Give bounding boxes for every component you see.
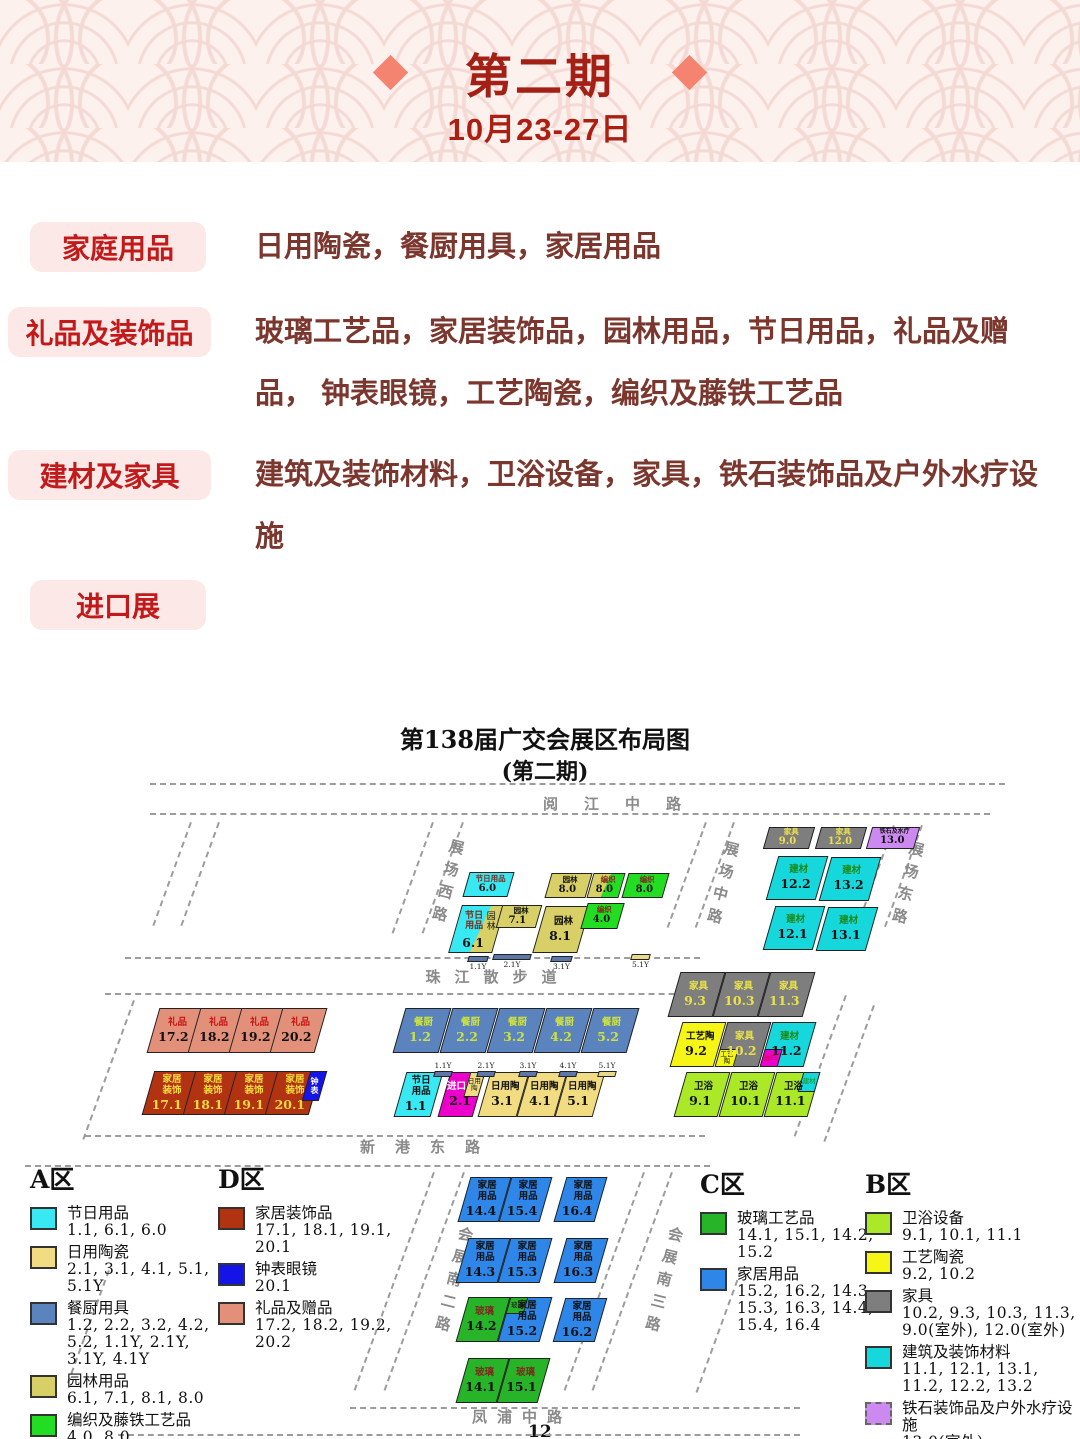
hall-number: 15.4 bbox=[507, 1204, 537, 1218]
hall-label: 家具 bbox=[734, 982, 753, 993]
legend-swatch bbox=[218, 1207, 245, 1230]
hall-number: 5.1 bbox=[567, 1094, 589, 1108]
legend-text: 工艺陶瓷9.2, 10.2 bbox=[902, 1249, 976, 1283]
hall-label: 日用陶 bbox=[568, 1082, 597, 1093]
hall-label: 家居装饰 bbox=[200, 1075, 226, 1097]
legend-label: 卫浴设备 bbox=[902, 1210, 1023, 1227]
hall-number: 10.1 bbox=[730, 1094, 760, 1108]
hall-block: 建材13.1 bbox=[816, 907, 879, 951]
hall-label: 卫浴 bbox=[740, 1082, 759, 1093]
hall-label: 建材 bbox=[790, 865, 809, 876]
legend-text: 家具10.2, 9.3, 10.3, 11.3, 9.0(室外), 12.0(室… bbox=[902, 1288, 1080, 1339]
hall-label: 家具 bbox=[783, 828, 798, 836]
category-pill: 进口展 bbox=[30, 580, 206, 630]
hall-label: 玻璃 bbox=[516, 1368, 535, 1379]
road-label: 凤浦中路 bbox=[472, 1406, 572, 1427]
hall-label: 家居用品 bbox=[569, 1302, 595, 1324]
hall-label: 餐厨 bbox=[509, 1018, 528, 1029]
legend-text: 铁石装饰品及户外水疗设施13.0(室外) bbox=[902, 1400, 1080, 1439]
hall-block: 编织8.0 bbox=[586, 873, 625, 898]
hall-number: 11.2 bbox=[771, 1044, 801, 1058]
legend-label: 玻璃工艺品 bbox=[737, 1210, 885, 1227]
legend-label: 编织及藤铁工艺品 bbox=[67, 1412, 191, 1429]
hall-number: 12.1 bbox=[777, 927, 807, 941]
category-pill: 礼品及装饰品 bbox=[8, 307, 211, 357]
legend-label: 铁石装饰品及户外水疗设施 bbox=[902, 1400, 1080, 1434]
legend-label: 家居用品 bbox=[737, 1266, 885, 1283]
legend-text: 礼品及赠品17.2, 18.2, 19.2, 20.2 bbox=[255, 1300, 433, 1351]
hall-number: 10.3 bbox=[725, 994, 755, 1008]
legend-item: 园林用品6.1, 7.1, 8.1, 8.0 bbox=[30, 1373, 235, 1407]
road-line bbox=[125, 957, 700, 959]
hall-label: 编织 bbox=[600, 876, 615, 884]
legend-item: 家居装饰品17.1, 18.1, 19.1, 20.1 bbox=[218, 1205, 433, 1256]
legend-halls: 17.1, 18.1, 19.1, 20.1 bbox=[255, 1222, 433, 1256]
hall-label: 礼品 bbox=[168, 1018, 187, 1029]
hall-label: 家居用品 bbox=[570, 1242, 596, 1264]
hall-number: 2.2 bbox=[456, 1030, 478, 1044]
legend-item: 玻璃工艺品14.1, 15.1, 14.2, 15.2 bbox=[700, 1210, 885, 1261]
category-list: 家庭用品日用陶瓷，餐厨用具，家居用品礼品及装饰品玻璃工艺品，家居装饰品，园林用品… bbox=[0, 162, 1080, 710]
hall-label: 玻璃 bbox=[476, 1307, 495, 1318]
hall-block: 节日用品园林6.1 bbox=[448, 905, 506, 953]
legend-swatch bbox=[30, 1414, 57, 1437]
legend-text: 编织及藤铁工艺品4.0, 8.0 bbox=[67, 1412, 191, 1439]
annex-bar: 4.1Y bbox=[552, 1062, 584, 1077]
hall-number: 6.0 bbox=[479, 884, 496, 895]
legend-label: 家居装饰品 bbox=[255, 1205, 433, 1222]
legend-item: 钟表眼镜20.1 bbox=[218, 1261, 433, 1295]
legend-text: 玻璃工艺品14.1, 15.1, 14.2, 15.2 bbox=[737, 1210, 885, 1261]
hall-label: 节日用品 bbox=[475, 875, 505, 883]
hall-label: 餐厨 bbox=[556, 1018, 575, 1029]
legend-halls: 9.1, 10.1, 11.1 bbox=[902, 1227, 1023, 1244]
legend-item: 建筑及装饰材料11.1, 12.1, 13.1, 11.2, 12.2, 13.… bbox=[865, 1344, 1080, 1395]
legend-swatch bbox=[865, 1346, 892, 1369]
legend-swatch bbox=[30, 1302, 57, 1325]
hall-number: 1.1 bbox=[404, 1099, 426, 1113]
legend-halls: 2.1, 3.1, 4.1, 5.1, 5.1Y bbox=[67, 1261, 235, 1295]
legend-swatch bbox=[865, 1212, 892, 1235]
legend-item: 节日用品1.1, 6.1, 6.0 bbox=[30, 1205, 235, 1239]
hall-number: 15.1 bbox=[507, 1380, 537, 1394]
hall-label: 餐厨 bbox=[415, 1018, 434, 1029]
hall-number: 13.2 bbox=[833, 878, 863, 892]
hall-label: 家居用品 bbox=[514, 1301, 540, 1323]
legend-text: 餐厨用具1.2, 2.2, 3.2, 4.2, 5.2, 1.1Y, 2.1Y,… bbox=[67, 1300, 235, 1368]
road-line bbox=[350, 1407, 800, 1409]
legend-halls: 6.1, 7.1, 8.1, 8.0 bbox=[67, 1390, 204, 1407]
legend-halls: 17.2, 18.2, 19.2, 20.2 bbox=[255, 1317, 433, 1351]
legend-swatch bbox=[700, 1212, 727, 1235]
legend-group: A区节日用品1.1, 6.1, 6.0日用陶瓷2.1, 3.1, 4.1, 5.… bbox=[30, 1160, 235, 1439]
legend-swatch bbox=[700, 1268, 727, 1291]
diamond-icon-left bbox=[373, 55, 408, 90]
legend-item: 铁石装饰品及户外水疗设施13.0(室外) bbox=[865, 1400, 1080, 1439]
hall-number: 2.1 bbox=[449, 1094, 471, 1108]
legend-group: C区玻璃工艺品14.1, 15.1, 14.2, 15.2家居用品15.2, 1… bbox=[700, 1165, 885, 1339]
annex-bar: 2.1Y bbox=[486, 954, 538, 969]
hall-number: 8.0 bbox=[559, 885, 576, 896]
hall-number: 13.1 bbox=[830, 928, 860, 942]
legend-label: 工艺陶瓷 bbox=[902, 1249, 976, 1266]
hall-block: 建材12.1 bbox=[763, 906, 826, 950]
hall-label: 家具 bbox=[689, 982, 708, 993]
hall-number: 10.2 bbox=[726, 1044, 756, 1058]
legend-text: 家居装饰品17.1, 18.1, 19.1, 20.1 bbox=[255, 1205, 433, 1256]
category-pill: 建材及家具 bbox=[8, 450, 211, 500]
hall-label: 钟表 bbox=[310, 1077, 319, 1095]
hall-label: 餐厨 bbox=[462, 1018, 481, 1029]
hall-label: 建材 bbox=[787, 915, 806, 926]
hall-block: 编织4.0 bbox=[580, 903, 624, 929]
hall-block: 园林8.0 bbox=[544, 873, 592, 898]
hall-block: 家居用品16.4 bbox=[554, 1177, 608, 1222]
legend-swatch bbox=[218, 1263, 245, 1286]
map-canvas: 第138届广交会展区布局图 (第二期) 12 阅江中路珠江散步道新港东路凤浦中路… bbox=[0, 710, 1080, 1439]
category-description: 建筑及装饰材料，卫浴设备，家具，铁石装饰品及户外水疗设施 bbox=[255, 444, 1045, 568]
hall-number: 9.2 bbox=[685, 1044, 707, 1058]
legend-swatch bbox=[865, 1251, 892, 1274]
hall-number: 8.0 bbox=[596, 885, 613, 896]
hall-label: 家居用品 bbox=[570, 1181, 596, 1203]
date-range: 10月23-27日 bbox=[0, 104, 1080, 149]
hall-number: 11.3 bbox=[770, 994, 800, 1008]
hall-label: 节日用品 bbox=[461, 911, 487, 932]
legend-halls: 11.1, 12.1, 13.1, 11.2, 12.2, 13.2 bbox=[902, 1361, 1080, 1395]
hall-block: 建材13.2 bbox=[819, 857, 882, 901]
hall-label: 编织 bbox=[597, 906, 612, 914]
hall-number: 6.1 bbox=[452, 936, 494, 950]
legend-halls: 1.1, 6.1, 6.0 bbox=[67, 1222, 167, 1239]
hall-number: 14.2 bbox=[466, 1319, 496, 1333]
hall-label: 礼品 bbox=[209, 1018, 228, 1029]
legend-swatch bbox=[30, 1207, 57, 1230]
road-label: 展场东路 bbox=[886, 839, 929, 933]
legend-label: 日用陶瓷 bbox=[67, 1244, 235, 1261]
hall-number: 9.3 bbox=[684, 994, 706, 1008]
hall-label: 家具 bbox=[835, 828, 850, 836]
hall-number: 19.1 bbox=[233, 1098, 263, 1112]
legend-group: B区卫浴设备9.1, 10.1, 11.1工艺陶瓷9.2, 10.2家具10.2… bbox=[865, 1165, 1080, 1439]
annex-bar: 5.1Y bbox=[591, 1062, 623, 1077]
road-label: 阅江中路 bbox=[543, 793, 707, 814]
legend-label: 餐厨用具 bbox=[67, 1300, 235, 1317]
hall-label: 礼品 bbox=[291, 1018, 310, 1029]
road-label: 新港东路 bbox=[360, 1136, 500, 1157]
flyer-page: 第二期 10月23-27日 家庭用品日用陶瓷，餐厨用具，家居用品礼品及装饰品玻璃… bbox=[0, 0, 1080, 1439]
legend-halls: 1.2, 2.2, 3.2, 4.2, 5.2, 1.1Y, 2.1Y, 3.1… bbox=[67, 1317, 235, 1368]
hall-number: 14.1 bbox=[466, 1380, 496, 1394]
map-subtitle: (第二期) bbox=[0, 754, 1080, 786]
legend-text: 节日用品1.1, 6.1, 6.0 bbox=[67, 1205, 167, 1239]
legend-item: 编织及藤铁工艺品4.0, 8.0 bbox=[30, 1412, 235, 1439]
hall-number: 7.1 bbox=[509, 916, 526, 927]
legend-text: 建筑及装饰材料11.1, 12.1, 13.1, 11.2, 12.2, 13.… bbox=[902, 1344, 1080, 1395]
hall-label: 园林 bbox=[513, 907, 528, 915]
legend-title: B区 bbox=[865, 1165, 1080, 1201]
hall-number: 8.0 bbox=[636, 885, 653, 896]
legend-item: 工艺陶瓷9.2, 10.2 bbox=[865, 1249, 1080, 1283]
annex-bar: 3.1Y bbox=[512, 1062, 544, 1077]
legend-title: A区 bbox=[30, 1160, 235, 1196]
legend-item: 礼品及赠品17.2, 18.2, 19.2, 20.2 bbox=[218, 1300, 433, 1351]
category-pill: 家庭用品 bbox=[30, 222, 206, 272]
road-line bbox=[823, 1005, 874, 1142]
hall-number: 12.0 bbox=[828, 837, 852, 848]
hall-label: 家居装饰 bbox=[159, 1075, 185, 1097]
hall-number: 18.2 bbox=[200, 1030, 230, 1044]
hall-number: 19.2 bbox=[241, 1030, 271, 1044]
legend-halls: 14.1, 15.1, 14.2, 15.2 bbox=[737, 1227, 885, 1261]
legend-label: 建筑及装饰材料 bbox=[902, 1344, 1080, 1361]
diamond-icon-right bbox=[672, 55, 707, 90]
legend-halls: 9.2, 10.2 bbox=[902, 1266, 976, 1283]
legend-halls: 4.0, 8.0 bbox=[67, 1429, 191, 1439]
legend-swatch bbox=[30, 1375, 57, 1398]
hall-block: 铁石及水疗13.0 bbox=[866, 827, 920, 849]
hall-number: 15.3 bbox=[506, 1265, 536, 1279]
legend-label: 钟表眼镜 bbox=[255, 1261, 317, 1278]
hall-block: 节日用品1.1 bbox=[394, 1072, 444, 1117]
hall-label: 家居用品 bbox=[514, 1242, 540, 1264]
hall-number: 13.0 bbox=[880, 836, 904, 847]
hall-label: 园林 bbox=[563, 876, 578, 884]
legend-title: D区 bbox=[218, 1160, 433, 1196]
hall-label: 家具 bbox=[736, 1032, 755, 1043]
hall-number: 14.3 bbox=[464, 1265, 494, 1279]
hall-block: 家具9.0 bbox=[763, 827, 815, 849]
hall-number: 9.1 bbox=[689, 1094, 711, 1108]
hall-label: 礼品 bbox=[250, 1018, 269, 1029]
hall-number: 4.1 bbox=[529, 1094, 551, 1108]
legend-swatch bbox=[865, 1290, 892, 1313]
hall-label: 进口 bbox=[448, 1082, 467, 1093]
category-description: 玻璃工艺品，家居装饰品，园林用品，节日用品，礼品及赠品， 钟表眼镜，工艺陶瓷，编… bbox=[255, 301, 1045, 425]
legend-item: 家具10.2, 9.3, 10.3, 11.3, 9.0(室外), 12.0(室… bbox=[865, 1288, 1080, 1339]
legend-halls: 10.2, 9.3, 10.3, 11.3, 9.0(室外), 12.0(室外) bbox=[902, 1305, 1080, 1339]
legend-label: 礼品及赠品 bbox=[255, 1300, 433, 1317]
legend-item: 家居用品15.2, 16.2, 14.3, 15.3, 16.3, 14.4, … bbox=[700, 1266, 885, 1334]
legend-label: 节日用品 bbox=[67, 1205, 167, 1222]
legend-halls: 15.2, 16.2, 14.3, 15.3, 16.3, 14.4, 15.4… bbox=[737, 1283, 885, 1334]
hall-label: 家居用品 bbox=[472, 1242, 498, 1264]
hall-number: 15.2 bbox=[506, 1324, 536, 1338]
hall-label: 卫浴 bbox=[695, 1082, 714, 1093]
map-title: 第138届广交会展区布局图 bbox=[0, 720, 1080, 755]
hall-number: 17.2 bbox=[159, 1030, 189, 1044]
hall-number: 11.1 bbox=[775, 1094, 805, 1108]
legend-swatch bbox=[30, 1246, 57, 1269]
legend-halls: 20.1 bbox=[255, 1278, 317, 1295]
hall-number: 12.2 bbox=[780, 877, 810, 891]
road-line bbox=[82, 1000, 134, 1140]
hall-label: 建材 bbox=[840, 916, 859, 927]
hall-label: 工艺陶 bbox=[686, 1032, 715, 1043]
hall-number: 14.4 bbox=[466, 1204, 496, 1218]
legend-text: 卫浴设备9.1, 10.1, 11.1 bbox=[902, 1210, 1023, 1244]
header-title-row: 第二期 bbox=[0, 38, 1080, 107]
hall-block: 编织8.0 bbox=[621, 873, 669, 898]
hall-number: 16.2 bbox=[561, 1325, 591, 1339]
hall-block: 园林8.1 bbox=[532, 906, 590, 953]
hall-number: 17.1 bbox=[151, 1098, 181, 1112]
page-title: 第二期 bbox=[465, 38, 615, 107]
hall-label: 日用陶 bbox=[491, 1082, 520, 1093]
hall-number: 16.3 bbox=[562, 1265, 592, 1279]
hall-block: 家居用品16.2 bbox=[553, 1298, 608, 1342]
header-banner: 第二期 10月23-27日 bbox=[0, 0, 1080, 162]
hall-label: 建材 bbox=[843, 866, 862, 877]
legend-label: 家具 bbox=[902, 1288, 1080, 1305]
hall-block: 家具12.0 bbox=[815, 827, 867, 849]
hall-number: 4.0 bbox=[593, 915, 610, 926]
legend-title: C区 bbox=[700, 1165, 885, 1201]
legend-halls: 13.0(室外) bbox=[902, 1434, 1080, 1439]
hall-label: 日用陶 bbox=[530, 1082, 559, 1093]
legend-item: 餐厨用具1.2, 2.2, 3.2, 4.2, 5.2, 1.1Y, 2.1Y,… bbox=[30, 1300, 235, 1368]
legend-item: 卫浴设备9.1, 10.1, 11.1 bbox=[865, 1210, 1080, 1244]
hall-label: 餐厨 bbox=[603, 1018, 622, 1029]
hall-block: 建材12.2 bbox=[766, 856, 829, 900]
annex-bar: 3.1Y bbox=[544, 956, 579, 971]
legend-item: 日用陶瓷2.1, 3.1, 4.1, 5.1, 5.1Y bbox=[30, 1244, 235, 1295]
hall-number: 4.2 bbox=[550, 1030, 572, 1044]
hall-number: 1.2 bbox=[409, 1030, 431, 1044]
hall-number: 9.0 bbox=[779, 837, 796, 848]
annex-bar: 1.1Y bbox=[427, 1062, 459, 1077]
hall-label: 节日用品 bbox=[408, 1076, 434, 1098]
hall-number: 3.1 bbox=[491, 1094, 513, 1108]
legend-text: 家居用品15.2, 16.2, 14.3, 15.3, 16.3, 14.4, … bbox=[737, 1266, 885, 1334]
annex-bar: 2.1Y bbox=[470, 1062, 502, 1077]
legend-text: 园林用品6.1, 7.1, 8.1, 8.0 bbox=[67, 1373, 204, 1407]
hall-label: 编织 bbox=[640, 876, 655, 884]
category-description: 日用陶瓷，餐厨用具，家居用品 bbox=[255, 216, 1045, 278]
hall-number: 3.2 bbox=[503, 1030, 525, 1044]
hall-label: 家居用品 bbox=[515, 1181, 541, 1203]
hall-block: 家居用品16.3 bbox=[554, 1238, 609, 1283]
hall-label: 家居装饰 bbox=[241, 1075, 267, 1097]
hall-number: 8.1 bbox=[549, 929, 571, 943]
hall-label: 卫浴 bbox=[785, 1082, 804, 1093]
legend-swatch bbox=[218, 1302, 245, 1325]
annex-bar: 5.1Y bbox=[624, 954, 657, 969]
hall-label: 家具 bbox=[779, 982, 798, 993]
hall-number: 20.1 bbox=[274, 1098, 304, 1112]
hall-number: 16.4 bbox=[562, 1204, 592, 1218]
legend-swatch bbox=[865, 1402, 892, 1425]
road-line bbox=[105, 993, 725, 995]
road-label: 展场中路 bbox=[701, 839, 744, 933]
legend-group: D区家居装饰品17.1, 18.1, 19.1, 20.1钟表眼镜20.1礼品及… bbox=[218, 1160, 433, 1356]
hall-label: 家居用品 bbox=[474, 1181, 500, 1203]
hall-label: 建材 bbox=[781, 1032, 800, 1043]
legend-text: 日用陶瓷2.1, 3.1, 4.1, 5.1, 5.1Y bbox=[67, 1244, 235, 1295]
hall-number: 20.2 bbox=[282, 1030, 312, 1044]
hall-label: 园林 bbox=[554, 917, 573, 928]
hall-number: 5.2 bbox=[597, 1030, 619, 1044]
hall-number: 18.1 bbox=[192, 1098, 222, 1112]
hall-block: 节日用品6.0 bbox=[462, 872, 514, 897]
road-line bbox=[150, 783, 1005, 785]
hall-label: 玻璃 bbox=[475, 1368, 494, 1379]
legend-text: 钟表眼镜20.1 bbox=[255, 1261, 317, 1295]
legend-label: 园林用品 bbox=[67, 1373, 204, 1390]
hall-block: 园林7.1 bbox=[496, 905, 543, 928]
